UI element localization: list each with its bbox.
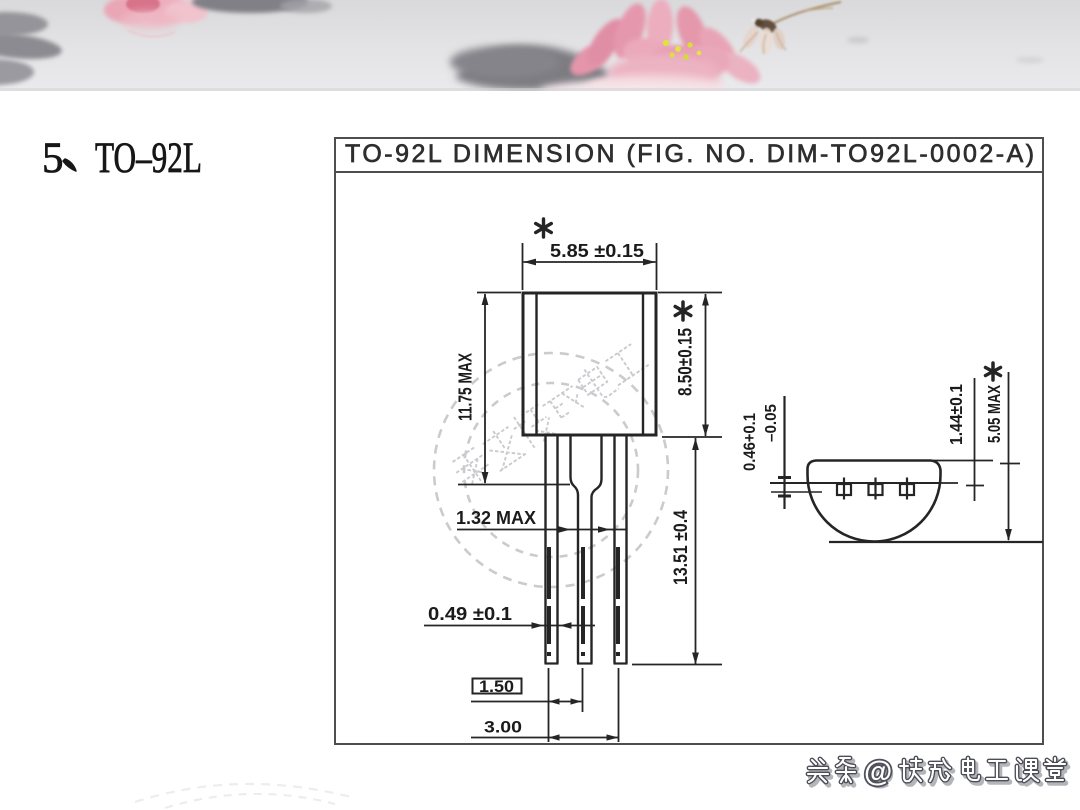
svg-text:@: @ [864, 756, 892, 788]
